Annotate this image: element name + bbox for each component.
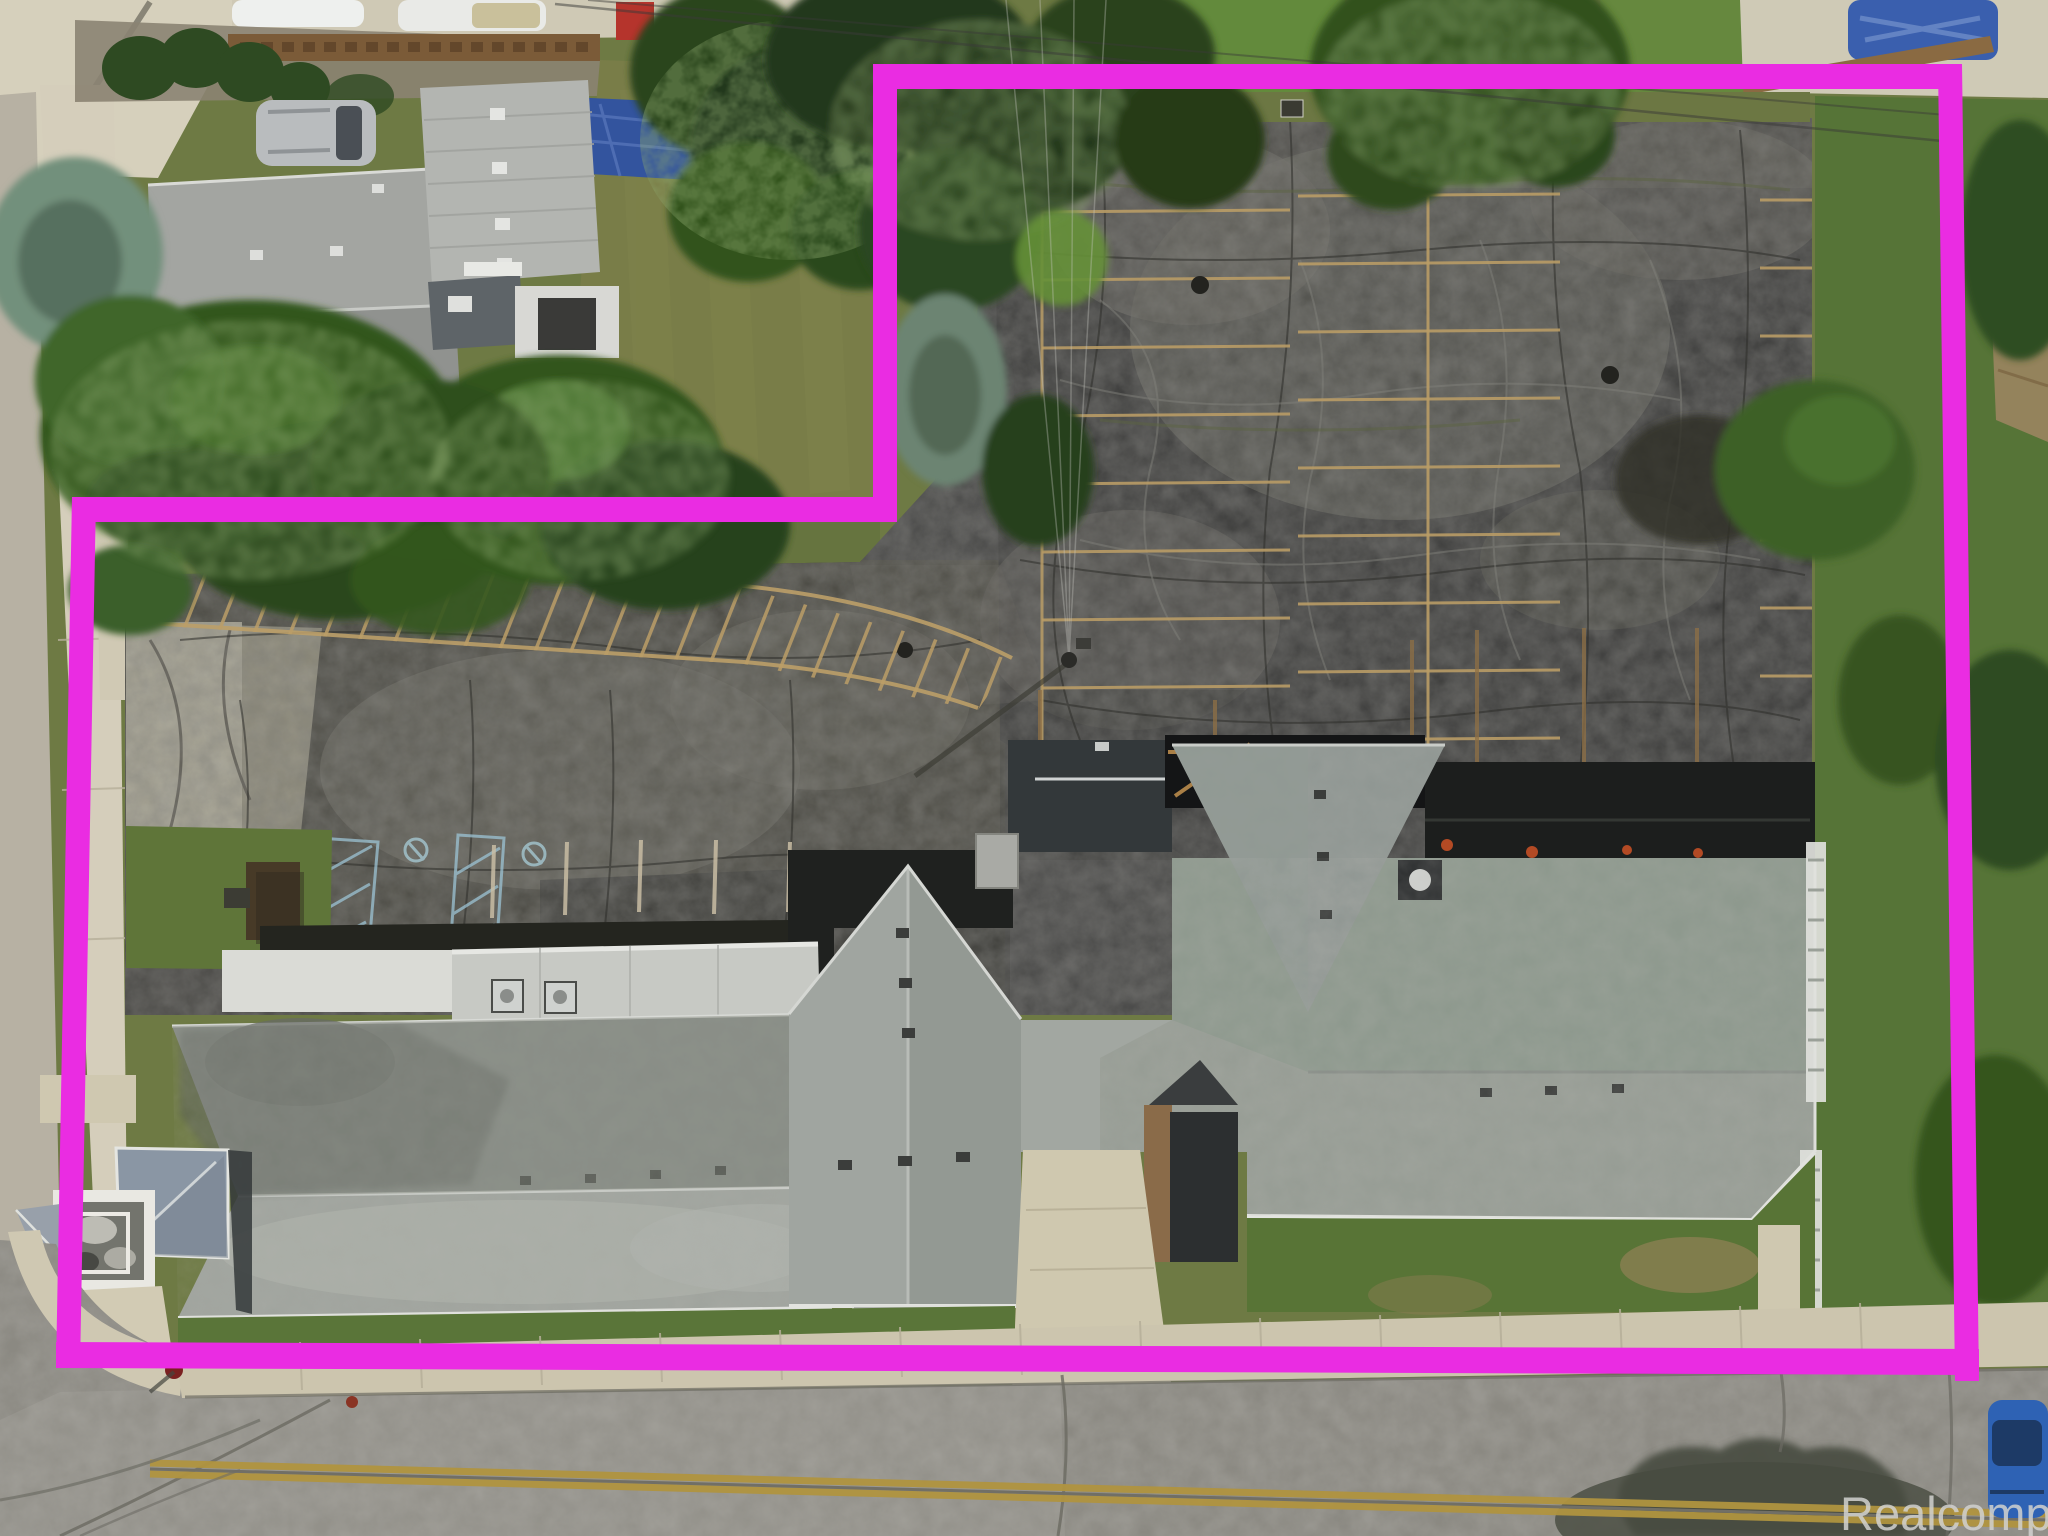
svg-text:Realcomp: Realcomp — [1840, 1487, 2048, 1536]
